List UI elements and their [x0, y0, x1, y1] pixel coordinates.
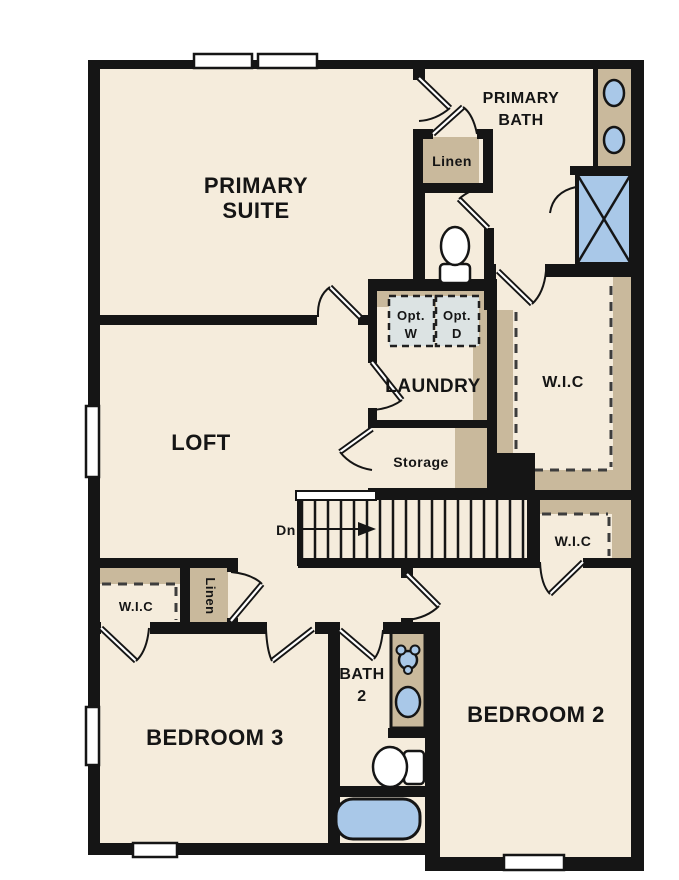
bathtub [336, 799, 420, 839]
bedroom2-label: BEDROOM 2 [467, 702, 605, 727]
window-bedroom3-bottom [133, 843, 177, 857]
opt-dryer-label2: D [452, 326, 462, 341]
sink-bath2 [396, 687, 420, 717]
window-bedroom2 [504, 855, 564, 870]
linen-upper-label: Linen [432, 153, 472, 169]
wic-bedroom3-label: W.I.C [119, 599, 153, 614]
linen-lower-label: Linen [203, 577, 218, 614]
opt-washer-label: Opt. [397, 308, 425, 323]
floor-plan-drawing: PRIMARY SUITE PRIMARY BATH Linen Opt. W … [0, 0, 679, 880]
window-primary-suite-2 [258, 54, 317, 68]
primary-suite-label2: SUITE [222, 198, 289, 223]
primary-bath-label2: BATH [498, 112, 543, 129]
opt-dryer-label: Opt. [443, 308, 471, 323]
bath2-label: BATH [339, 666, 384, 683]
toilet-bath2 [373, 747, 424, 787]
window-primary-suite-1 [194, 54, 252, 68]
sink-primary-2 [604, 127, 624, 153]
toilet-primary [440, 227, 470, 283]
window-bedroom3-left [86, 707, 99, 765]
stair-railing [296, 491, 376, 500]
wic-main-label: W.I.C [542, 374, 584, 391]
wic-right-label: W.I.C [555, 533, 592, 549]
loft-label: LOFT [171, 430, 230, 455]
storage-label: Storage [393, 454, 449, 470]
bath2-label2: 2 [357, 688, 366, 705]
floor-plan-page: PRIMARY SUITE PRIMARY BATH Linen Opt. W … [0, 0, 679, 880]
bedroom3-label: BEDROOM 3 [146, 725, 284, 750]
opt-washer-label2: W [405, 326, 418, 341]
sink-primary-1 [604, 80, 624, 106]
primary-bath-label: PRIMARY [483, 90, 560, 107]
shower [577, 174, 631, 264]
stairs-down-label: Dn [276, 522, 296, 538]
laundry-label: LAUNDRY [385, 376, 481, 397]
window-loft [86, 406, 99, 477]
primary-suite-label: PRIMARY [204, 173, 308, 198]
